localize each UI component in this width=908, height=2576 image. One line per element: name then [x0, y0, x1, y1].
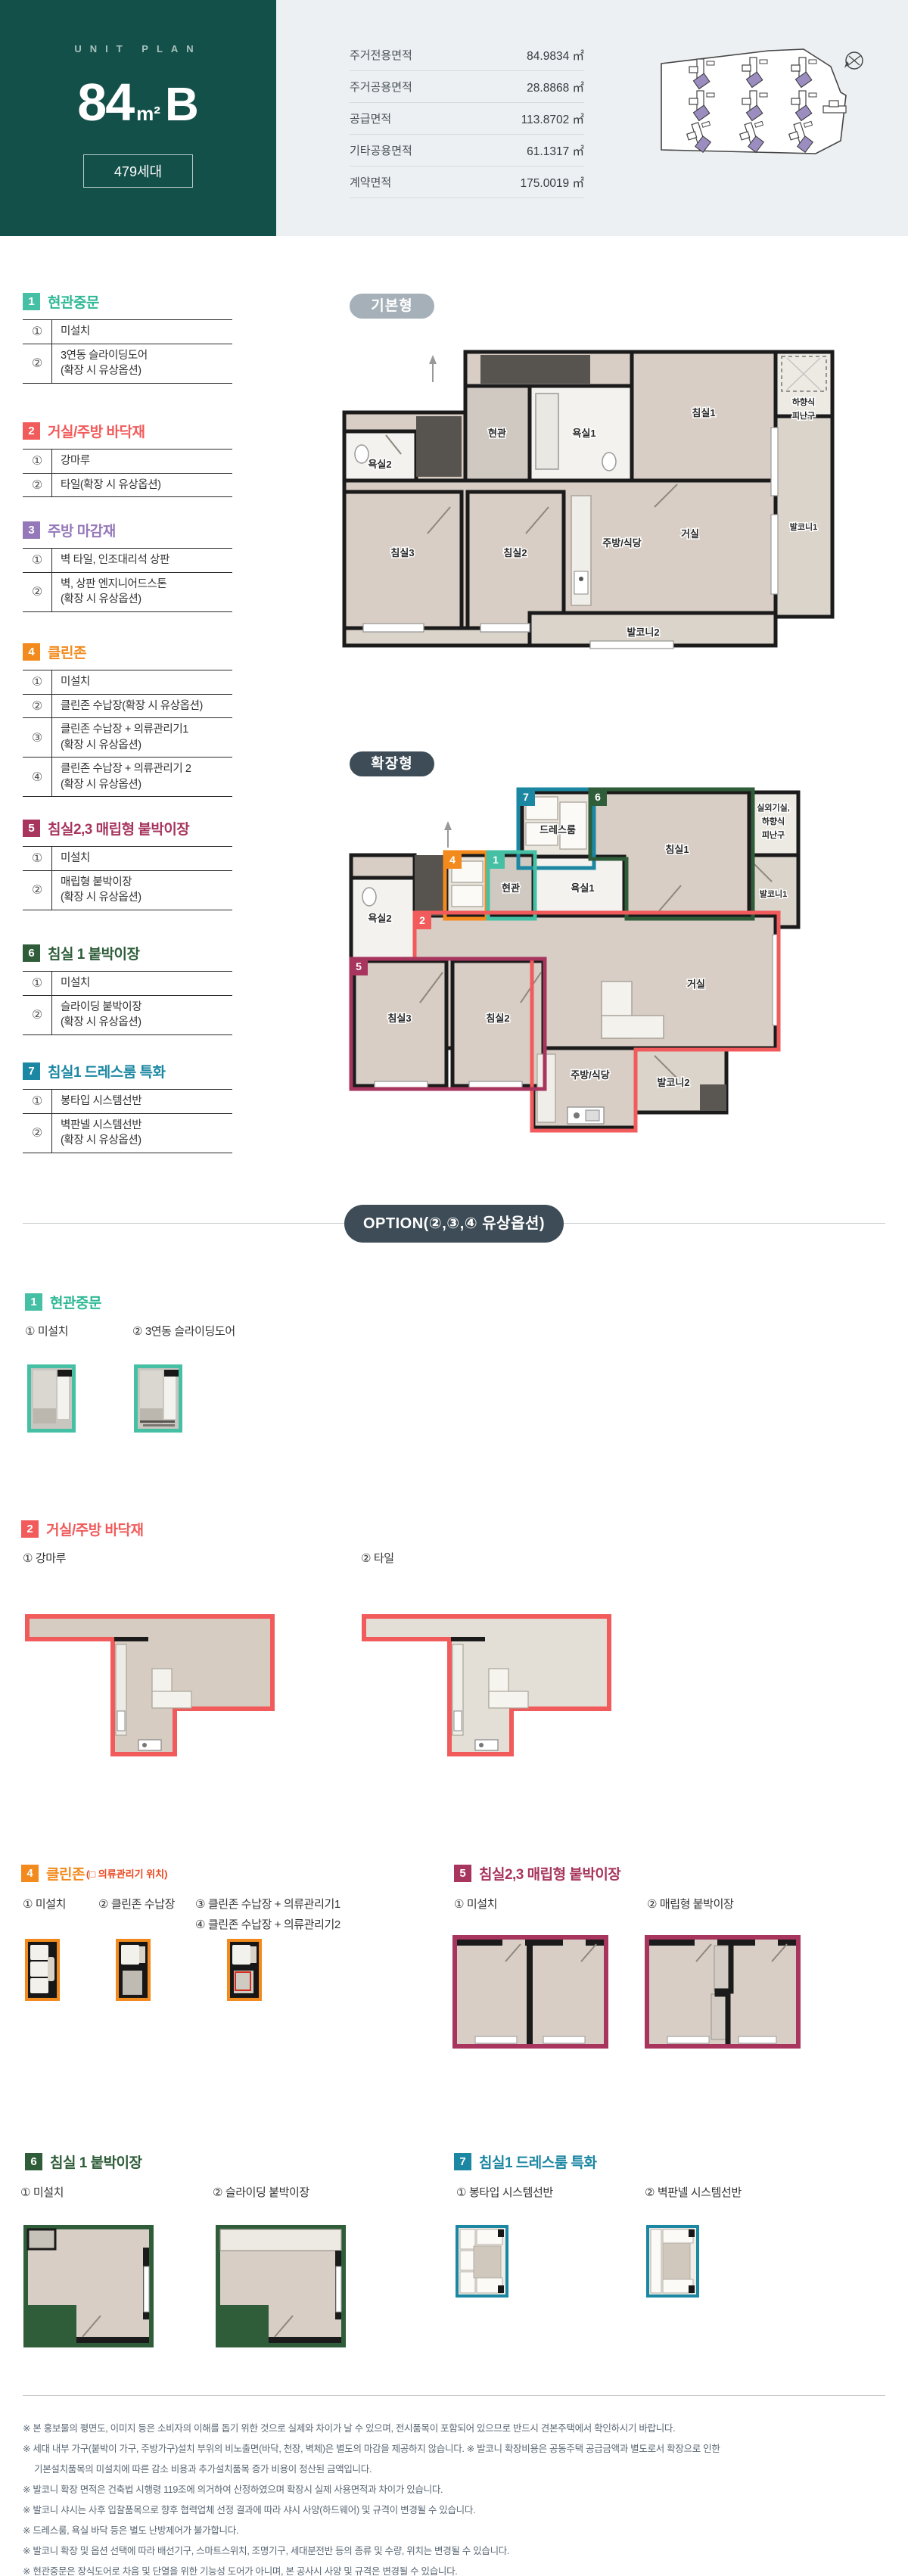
option1-thumb-none: [27, 1364, 76, 1433]
area-row: 공급면적113.8702 ㎡: [350, 103, 584, 135]
spec-section-bed1-dressroom: 7침실1 드레스룸 특화 ①봉타입 시스템선반 ②벽판넬 시스템선반(확장 시 …: [23, 1061, 232, 1153]
svg-text:현관: 현관: [488, 428, 506, 439]
row-number: ②: [23, 344, 52, 383]
section-title: 거실/주방 바닥재: [46, 1519, 143, 1539]
unit-size: 84: [77, 73, 133, 132]
option-section7-header: 7 침실1 드레스룸 특화: [454, 2151, 596, 2172]
option-item-label: ① 미설치: [20, 2184, 64, 2200]
room-balcony1: [776, 416, 832, 617]
section-title: 침실 1 붙박이장: [48, 943, 140, 963]
section-title: 주방 마감재: [48, 520, 116, 540]
row-text: 벽, 상판 엔지니어드스톤(확장 시 유상옵션): [52, 573, 232, 611]
disclaimer-line: ※ 드레스룸, 욕실 바닥 등은 별도 난방제어가 불가합니다.: [23, 2521, 889, 2541]
row-text: 3연동 슬라이딩도어(확장 시 유상옵션): [52, 344, 232, 383]
spec-section-bed1-closet: 6침실 1 붙박이장 ①미설치 ②슬라이딩 붙박이장(확장 시 유상옵션): [23, 943, 232, 1035]
row-text: 슬라이딩 붙박이장(확장 시 유상옵션): [52, 996, 232, 1034]
section-title: 침실2,3 매립형 붙박이장: [479, 1863, 620, 1884]
option-item-label: ② 벽판넬 시스템선반: [645, 2184, 742, 2200]
section-title: 클린존: [46, 1863, 85, 1884]
svg-text:욕실2: 욕실2: [368, 459, 391, 470]
svg-text:발코니2: 발코니2: [627, 627, 659, 638]
plan-tag-extended: 확장형: [350, 751, 434, 776]
section-number-badge: 2: [21, 1520, 39, 1538]
north-arrow-icon: [444, 821, 452, 848]
row-number: ①: [23, 549, 52, 572]
unit-type: B: [165, 79, 199, 131]
row-number: ①: [23, 1090, 52, 1113]
bottom-divider-line: [23, 2395, 885, 2396]
section-number-badge: 3: [23, 521, 40, 539]
area-value: 175.0019 ㎡: [521, 174, 584, 191]
row-text: 클린존 수납장 + 의류관리기 2(확장 시 유상옵션): [52, 758, 232, 796]
unit-size-unit: m²: [136, 102, 160, 125]
option4-thumb-storage: [116, 1939, 151, 2001]
row-number: ①: [23, 450, 52, 473]
option-divider-pill: OPTION(②,③,④ 유상옵션): [344, 1205, 564, 1243]
hero-eyebrow: UNIT PLAN: [0, 43, 276, 54]
spec-section-entrance-door: 1현관중문 ①미설치 ②3연동 슬라이딩도어(확장 시 유상옵션): [23, 291, 232, 384]
area-label: 공급면적: [350, 110, 391, 126]
section-title: 침실1 드레스룸 특화: [479, 2151, 596, 2172]
svg-text:발코니1: 발코니1: [790, 521, 817, 532]
row-number: ①: [23, 320, 52, 344]
area-row: 주거공용면적28.8868 ㎡: [350, 71, 584, 103]
row-text: 벽판넬 시스템선반(확장 시 유상옵션): [52, 1114, 232, 1153]
option-section2-header: 2 거실/주방 바닥재: [21, 1519, 143, 1539]
area-row: 계약면적175.0019 ㎡: [350, 166, 584, 198]
area-label: 주거공용면적: [350, 79, 412, 95]
row-number: ②: [23, 474, 52, 497]
row-text: 타일(확장 시 유상옵션): [52, 474, 232, 497]
svg-text:2: 2: [419, 914, 425, 926]
option-section4-header: 4 클린존 (□ 의류관리기 위치): [21, 1863, 167, 1884]
option-item-label: ① 강마루: [23, 1550, 66, 1566]
site-mini-map: [655, 38, 875, 193]
area-table: 주거전용면적84.9834 ㎡ 주거공용면적28.8868 ㎡ 공급면적113.…: [350, 39, 584, 198]
svg-text:1: 1: [493, 854, 499, 866]
option-item-label: ② 타일: [361, 1550, 394, 1566]
svg-text:7: 7: [523, 791, 529, 803]
row-text: 클린존 수납장 + 의류관리기1(확장 시 유상옵션): [52, 718, 232, 757]
svg-text:하향식: 하향식: [762, 816, 785, 826]
svg-text:6: 6: [595, 791, 601, 803]
option1-thumb-sliding-door: [134, 1364, 182, 1433]
disclaimer-line: ※ 본 홍보물의 평면도, 이미지 등은 소비자의 이해를 돕기 위한 것으로 …: [23, 2419, 889, 2439]
households-badge: 479세대: [83, 154, 193, 188]
clothing-manager-note: (□ 의류관리기 위치): [86, 1866, 167, 1881]
svg-text:발코니1: 발코니1: [760, 888, 787, 899]
svg-text:주방/식당: 주방/식당: [602, 537, 641, 549]
row-number: ②: [23, 573, 52, 611]
row-number: ①: [23, 847, 52, 870]
row-text: 봉타입 시스템선반: [52, 1090, 232, 1113]
option6-thumb-sliding-closet: [216, 2225, 346, 2347]
section-title: 현관중문: [48, 291, 99, 312]
option-section6-header: 6 침실 1 붙박이장: [25, 2151, 142, 2172]
section-title: 거실/주방 바닥재: [48, 421, 145, 441]
section-title: 침실1 드레스룸 특화: [48, 1061, 165, 1081]
compass-icon: [844, 52, 863, 69]
option-item-label: ① 미설치: [25, 1323, 68, 1339]
svg-text:피난구: 피난구: [792, 410, 815, 421]
option-item-label: ② 매립형 붙박이장: [647, 1896, 733, 1912]
section-number-badge: 5: [23, 820, 40, 837]
svg-text:침실3: 침실3: [387, 1013, 411, 1024]
svg-text:현관: 현관: [502, 882, 520, 894]
disclaimer-list: ※ 본 홍보물의 평면도, 이미지 등은 소비자의 이해를 돕기 위한 것으로 …: [23, 2419, 889, 2576]
area-value: 61.1317 ㎡: [527, 142, 584, 159]
row-text: 매립형 붙박이장(확장 시 유상옵션): [52, 871, 232, 910]
row-number: ②: [23, 695, 52, 718]
row-number: ②: [23, 1114, 52, 1153]
svg-text:침실2: 침실2: [503, 547, 527, 558]
section-number-badge: 4: [21, 1865, 39, 1882]
disclaimer-line: ※ 발코니 샤시는 사후 입찰품목으로 향후 협력업체 선정 결과에 따라 샤시…: [23, 2500, 889, 2521]
unit-plan-page: UNIT PLAN 84m²B 479세대 주거전용면적84.9834 ㎡ 주거…: [0, 0, 908, 2576]
section-number-badge: 4: [23, 643, 40, 661]
row-number: ①: [23, 972, 52, 995]
area-label: 주거전용면적: [350, 47, 412, 63]
section-number-badge: 1: [25, 1293, 42, 1311]
plan-tag-basic: 기본형: [350, 294, 434, 319]
unit-size-title: 84m²B: [0, 76, 276, 129]
section-number-badge: 7: [23, 1062, 40, 1080]
row-number: ②: [23, 996, 52, 1034]
row-number: ①: [23, 670, 52, 694]
section-number-badge: 6: [23, 944, 40, 962]
row-text: 미설치: [52, 670, 232, 694]
svg-text:침실3: 침실3: [390, 547, 414, 558]
option-item-label: ① 미설치: [23, 1896, 66, 1912]
section-title: 침실2,3 매립형 붙박이장: [48, 818, 189, 838]
spec-section-kitchen-finish: 3주방 마감재 ①벽 타일, 인조대리석 상판 ②벽, 상판 엔지니어드스톤(확…: [23, 520, 232, 612]
row-text: 클린존 수납장(확장 시 유상옵션): [52, 695, 232, 718]
area-row: 주거전용면적84.9834 ㎡: [350, 39, 584, 71]
option6-thumb-none: [23, 2225, 154, 2347]
svg-text:침실1: 침실1: [692, 407, 715, 418]
svg-text:드레스룸: 드레스룸: [540, 824, 576, 835]
disclaimer-line: ※ 발코니 확장 및 옵션 선택에 따라 배선기구, 스마트스위치, 조명기구,…: [23, 2541, 889, 2562]
option7-thumb-wall-panel-shelf: [646, 2225, 699, 2298]
svg-text:거실: 거실: [681, 528, 699, 540]
svg-text:욕실1: 욕실1: [572, 428, 595, 439]
disclaimer-line: 기본설치품목의 미설치에 따른 감소 비용과 추가설치품목 증가 비용이 정산된…: [23, 2459, 889, 2480]
svg-text:거실: 거실: [687, 978, 705, 990]
row-number: ④: [23, 758, 52, 796]
option4-thumb-storage-clothing-manager: [227, 1939, 262, 2001]
section-title: 현관중문: [50, 1292, 101, 1312]
svg-text:4: 4: [449, 854, 456, 866]
option-item-label: ③ 클린존 수납장 + 의류관리기1: [195, 1896, 340, 1912]
option2-thumb-wood-floor: [25, 1614, 276, 1758]
north-arrow-icon: [429, 355, 437, 382]
section-title: 클린존: [48, 642, 86, 662]
option2-thumb-tile-floor: [362, 1614, 613, 1758]
section-number-badge: 7: [454, 2153, 471, 2170]
svg-text:5: 5: [356, 960, 362, 972]
option5-thumb-none: [452, 1935, 608, 2049]
section-number-badge: 1: [23, 293, 40, 310]
option5-thumb-builtin-closet: [645, 1935, 801, 2049]
area-value: 28.8868 ㎡: [527, 79, 584, 95]
svg-text:실외기실,: 실외기실,: [757, 802, 790, 813]
option7-thumb-rod-shelf: [456, 2225, 508, 2298]
option-item-label: ② 3연동 슬라이딩도어: [132, 1323, 235, 1339]
row-text: 미설치: [52, 320, 232, 344]
row-text: 강마루: [52, 450, 232, 473]
disclaimer-line: ※ 현관중문은 장식도어로 차음 및 단열을 위한 기능성 도어가 아니며, 본…: [23, 2562, 889, 2576]
option-item-label: ② 클린존 수납장: [98, 1896, 175, 1912]
area-value: 84.9834 ㎡: [527, 47, 584, 64]
svg-text:하향식: 하향식: [792, 397, 815, 407]
area-value: 113.8702 ㎡: [521, 110, 584, 127]
option-item-label: ① 미설치: [454, 1896, 497, 1912]
row-number: ②: [23, 871, 52, 910]
option-item-label: ④ 클린존 수납장 + 의류관리기2: [195, 1916, 340, 1932]
hero-panel: UNIT PLAN 84m²B 479세대: [0, 0, 276, 236]
spec-section-bed23-closet: 5침실2,3 매립형 붙박이장 ①미설치 ②매립형 붙박이장(확장 시 유상옵션…: [23, 818, 232, 910]
section-number-badge: 6: [25, 2153, 42, 2170]
svg-text:주방/식당: 주방/식당: [571, 1069, 609, 1081]
svg-text:욕실1: 욕실1: [571, 882, 594, 894]
floor-plan-basic: 침실1 하향식 피난구 현관 욕실1 욕실2 발코니1 거실 침실3 침실2 주…: [340, 344, 840, 655]
row-text: 미설치: [52, 847, 232, 870]
section-number-badge: 5: [454, 1865, 471, 1882]
row-number: ③: [23, 718, 52, 757]
svg-text:침실2: 침실2: [486, 1013, 509, 1024]
svg-text:욕실2: 욕실2: [368, 913, 391, 924]
disclaimer-line: ※ 세대 내부 가구(붙박이 가구, 주방가구)설치 부위의 비노출면(바닥, …: [23, 2439, 889, 2459]
area-label: 기타공용면적: [350, 142, 412, 158]
disclaimer-line: ※ 발코니 확장 면적은 건축법 시행령 119조에 의거하여 산정하였으며 확…: [23, 2480, 889, 2500]
section-number-badge: 2: [23, 422, 40, 440]
option-section1-header: 1 현관중문: [25, 1292, 101, 1312]
option-item-label: ① 봉타입 시스템선반: [456, 2184, 553, 2200]
area-label: 계약면적: [350, 174, 391, 190]
row-text: 벽 타일, 인조대리석 상판: [52, 549, 232, 572]
spec-section-clean-zone: 4클린존 ①미설치 ②클린존 수납장(확장 시 유상옵션) ③클린존 수납장 +…: [23, 642, 232, 797]
room-bed2: [468, 492, 564, 628]
option4-thumb-none: [25, 1939, 60, 2001]
floor-plan-extended: 7 6 4 1 2 5 드레스룸 침실1 실외기실, 하향식 피난구 현관 욕실…: [333, 783, 832, 1146]
option-item-label: ② 슬라이딩 붙박이장: [213, 2184, 309, 2200]
row-text: 미설치: [52, 972, 232, 995]
svg-text:발코니2: 발코니2: [657, 1077, 689, 1088]
room-bed3: [344, 492, 462, 628]
svg-text:침실1: 침실1: [665, 844, 689, 855]
area-row: 기타공용면적61.1317 ㎡: [350, 135, 584, 166]
svg-text:피난구: 피난구: [762, 829, 785, 840]
section-title: 침실 1 붙박이장: [50, 2151, 142, 2172]
option-section5-header: 5 침실2,3 매립형 붙박이장: [454, 1863, 620, 1884]
spec-section-floor-material: 2거실/주방 바닥재 ①강마루 ②타일(확장 시 유상옵션): [23, 421, 232, 497]
